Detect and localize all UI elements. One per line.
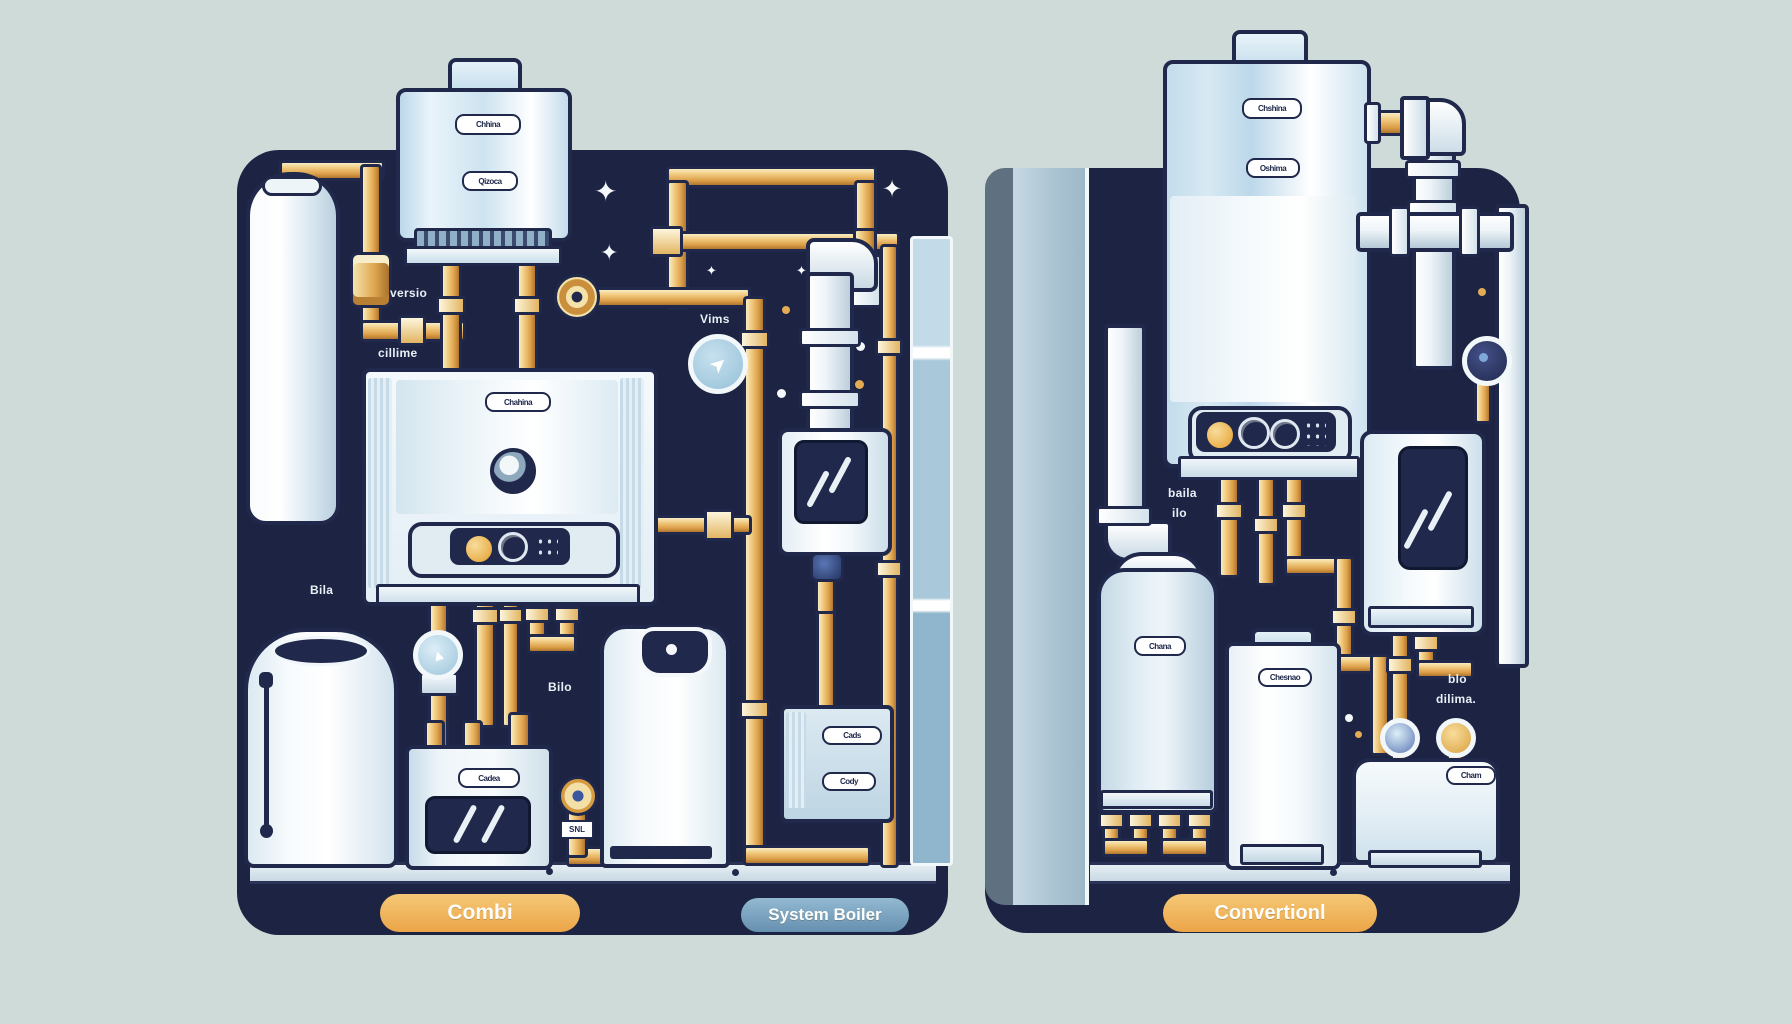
pipe-label: blo [1448, 672, 1467, 686]
pipe-label: ilo [1172, 506, 1187, 520]
window-reflection [828, 456, 852, 494]
pipe-label: baila [1168, 486, 1197, 500]
system-boiler-label-pill: System Boiler [741, 898, 909, 932]
appliance-window [425, 796, 531, 854]
rod-knob [259, 672, 273, 688]
dot-decoration [782, 306, 790, 314]
pipe-label: dilima. [1436, 692, 1476, 706]
pipe-label: versio [390, 286, 427, 300]
pipe-coupling [398, 315, 426, 346]
pipe-coupling [739, 330, 770, 349]
pipe-segment [1102, 838, 1150, 857]
side-unit-column [786, 712, 806, 808]
pipe-coupling [512, 296, 542, 315]
dot-decoration [1478, 288, 1486, 296]
floor-dot [732, 869, 739, 876]
cylinder-window [794, 440, 868, 524]
temperature-knob [1204, 419, 1236, 451]
mode-dial [1238, 417, 1270, 449]
status-indicator-lights [536, 536, 558, 560]
pipe-coupling [875, 560, 903, 578]
pipe-label: Vims [700, 312, 730, 326]
brand-badge: Chahina [485, 392, 551, 412]
flue-bracket [1400, 96, 1430, 160]
wall-edge [985, 168, 1013, 905]
star-decoration: ✦ [882, 178, 902, 202]
temperature-knob [463, 533, 495, 565]
boiler-bottom-ledge [376, 584, 640, 605]
pipe-coupling [739, 700, 770, 719]
dot-decoration [1355, 731, 1362, 738]
pipe-segment [1218, 476, 1240, 578]
tank-top-opening [272, 636, 370, 666]
flue-pipe-horizontal [1356, 212, 1514, 252]
pipe-coupling [1098, 812, 1125, 829]
pipe-coupling [875, 338, 903, 356]
rod-knob [260, 824, 273, 838]
brand-badge: Cody [822, 772, 876, 791]
window-reflection [806, 470, 830, 508]
pipe-label: Bilo [548, 680, 572, 694]
brand-badge: Chesnao [1258, 668, 1312, 687]
status-indicator-lights [1304, 420, 1326, 446]
pump-arrow-icon: ▲ [428, 645, 447, 666]
pipe-segment [590, 287, 751, 308]
flue-ring [799, 328, 861, 347]
wall-front [1013, 168, 1089, 905]
mini-gauge [1380, 718, 1420, 758]
cylinder-base [610, 846, 712, 859]
star-decoration: ✦ [600, 242, 618, 264]
pressure-gauge: ➤ [688, 334, 748, 394]
round-valve [554, 274, 600, 320]
pipe-label: cillime [378, 346, 417, 360]
tank-level-rod [264, 684, 269, 830]
pipe-coupling [553, 606, 581, 623]
brand-badge: Cads [822, 726, 882, 745]
cylinder-bottom-band [1368, 606, 1474, 628]
pipe-ring [1364, 102, 1381, 144]
boiler-comparison-illustration: Chhina Qizoca Chahina ▲ Cadea SNL [0, 0, 1792, 1024]
expansion-cylinder [246, 172, 340, 525]
pipe-coupling [1412, 634, 1440, 652]
combi-boiler [396, 88, 572, 242]
brand-badge: Chshina [1242, 98, 1302, 119]
conventional-label-pill: Convertionl [1163, 894, 1377, 932]
pipe-segment [666, 166, 877, 188]
flue-pipe-edge [1495, 204, 1529, 668]
floor-dot [1330, 869, 1337, 876]
gauge-needle-dot [1479, 353, 1488, 362]
gauge-arrow-icon: ➤ [703, 349, 732, 379]
window-reflection [480, 804, 505, 844]
flue-ring [1405, 160, 1461, 179]
pipe-coupling [1127, 812, 1154, 829]
window-reflection [452, 804, 477, 844]
cylinder-valve-knob [810, 552, 844, 582]
cylinder-bottom-band [1100, 790, 1213, 809]
pipe-coupling [470, 607, 500, 625]
flue-ring [1459, 206, 1480, 257]
pipe-segment [516, 260, 538, 378]
pipe-coupling [1386, 656, 1414, 674]
mini-gauge [1436, 718, 1476, 758]
pipe-segment [743, 296, 766, 854]
cylinder-base [1240, 844, 1324, 865]
combi-boiler-base [404, 246, 562, 266]
boiler-lower-body [1170, 196, 1356, 402]
dot-decoration [855, 380, 864, 389]
pipe-segment [527, 634, 577, 654]
mode-dial [498, 532, 528, 562]
pipe-segment [652, 515, 752, 535]
flue-ring [1389, 206, 1410, 257]
brand-badge: Cadea [458, 768, 520, 788]
brand-badge: Cham [1446, 766, 1496, 785]
pipe-coupling [704, 509, 734, 541]
brand-badge: Chhina [455, 114, 521, 135]
safety-valve [558, 776, 598, 816]
dot-decoration [1345, 714, 1353, 722]
pipe-coupling [497, 607, 524, 624]
pipe-coupling [1214, 502, 1244, 520]
star-decoration: ✦ [706, 264, 717, 277]
boiler-side-column [368, 378, 392, 588]
pressure-gauge [1462, 336, 1512, 386]
pipe-coupling [1186, 812, 1213, 829]
dot-decoration [777, 389, 786, 398]
flue-collar [1096, 506, 1152, 526]
brand-badge: Oshima [1246, 158, 1300, 178]
pipe-coupling [436, 296, 466, 315]
pipe-segment [440, 260, 462, 378]
pipe-label: Bila [310, 583, 333, 597]
pipe-valve-fitting [350, 252, 392, 308]
mode-dial [1270, 419, 1300, 449]
tank-base [1368, 850, 1482, 868]
pipe-coupling [1252, 516, 1280, 534]
pipe-segment [1160, 838, 1209, 857]
boiler-side-column [620, 378, 644, 588]
flue-ring [799, 390, 861, 409]
feed-cylinder [1097, 568, 1218, 814]
handle-dot [666, 644, 677, 655]
pipe-segment [743, 845, 871, 866]
valve-tag: SNL [560, 820, 594, 839]
pipe-segment [360, 164, 382, 266]
cylinder-window [1398, 446, 1468, 570]
brand-badge: Chana [1134, 636, 1186, 656]
flue-pipe [806, 272, 854, 440]
wall-window-strip [910, 236, 953, 866]
pipe-coupling [1280, 502, 1308, 520]
boiler-port [490, 448, 536, 494]
pipe-segment [816, 602, 836, 712]
window-reflection [1427, 490, 1453, 532]
pipe-coupling [523, 606, 551, 623]
pipe-coupling [650, 226, 683, 257]
window-reflection [1403, 508, 1429, 550]
pump-valve: ▲ [413, 630, 463, 680]
pipe-coupling [1330, 608, 1358, 626]
brand-badge: Qizoca [462, 171, 518, 191]
pipe-coupling [1156, 812, 1183, 829]
boiler-bottom-ledge [1178, 456, 1360, 480]
combi-label-pill: Combi [380, 894, 580, 932]
expansion-cylinder-cap [262, 176, 322, 196]
star-decoration: ✦ [594, 178, 617, 206]
